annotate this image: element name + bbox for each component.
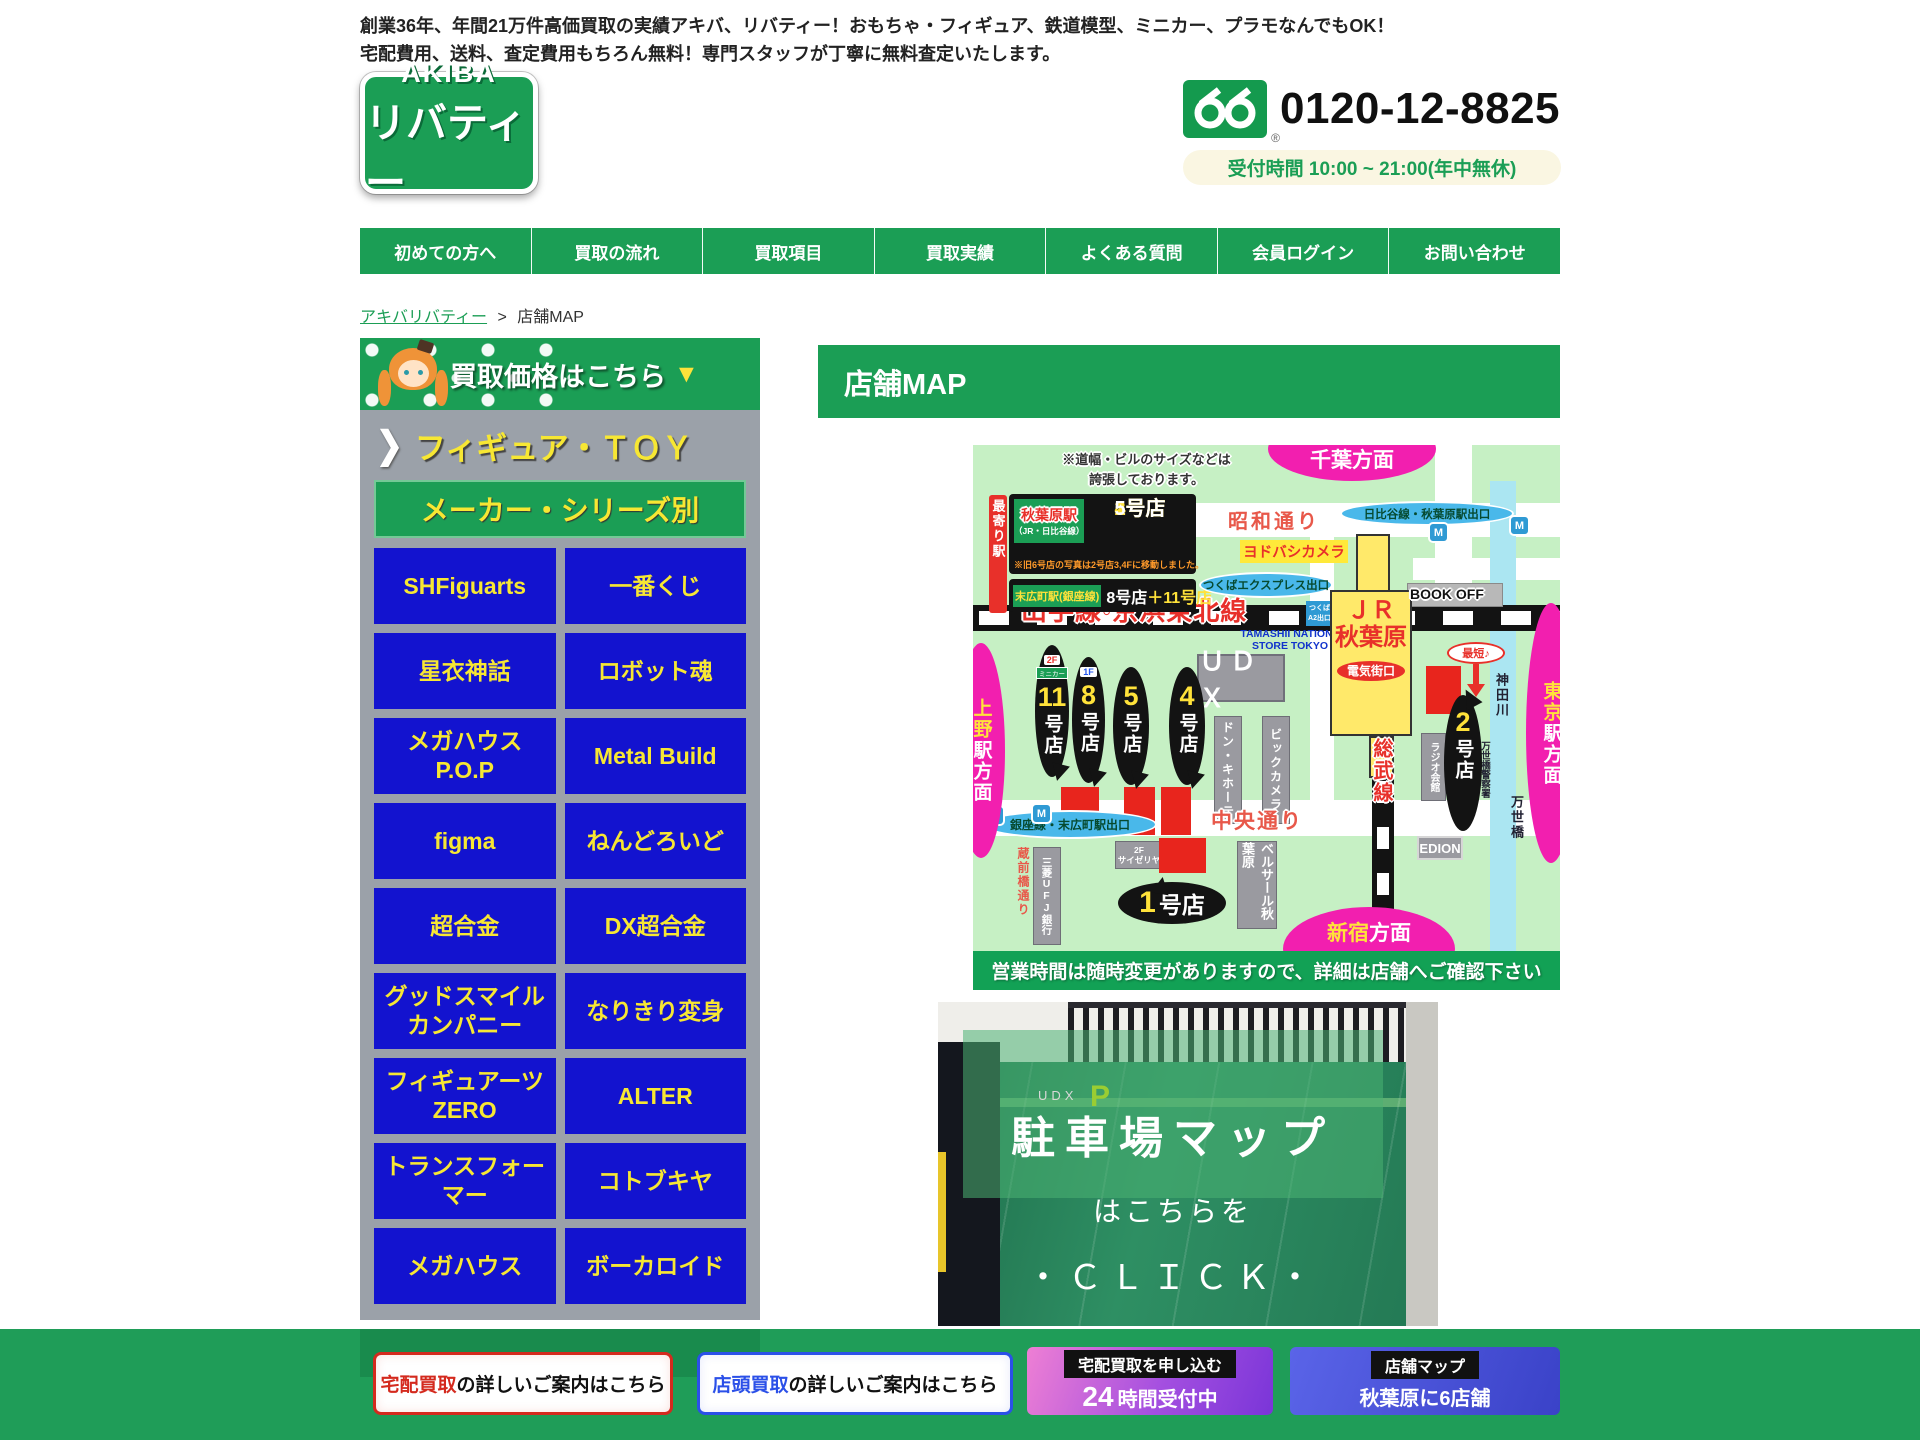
nav-item-first-time[interactable]: 初めての方へ: [360, 228, 532, 274]
reception-hours: 受付時間 10:00 ~ 21:00(年中無休): [1183, 150, 1561, 185]
page-title-bar: 店舗MAP: [818, 345, 1560, 418]
delivery-apply-button[interactable]: 宅配買取を申し込む 24時間受付中: [1027, 1347, 1273, 1415]
delivery-purchase-guide-button[interactable]: 宅配買取の詳しいご案内はこちら: [373, 1352, 673, 1415]
jr-label: ＪＲ: [1332, 598, 1410, 625]
map-info-bar: 営業時間は随時変更がありますので、詳細は店舗へご確認下さい: [973, 951, 1560, 990]
saizeriya-label: サイゼリヤ: [1118, 855, 1161, 865]
saizeriya-floor: 2F: [1134, 845, 1144, 855]
store-8-label: 8号店: [1106, 590, 1147, 607]
category-goodsmile[interactable]: グッドスマイルカンパニー: [374, 973, 556, 1049]
nav-item-purchase-flow[interactable]: 買取の流れ: [532, 228, 704, 274]
nav-item-purchase-results[interactable]: 買取実績: [875, 228, 1047, 274]
udx-building: ＵＤＸ: [1197, 654, 1285, 702]
tsukuba-express-exit-label: つくばエクスプレス出口: [1199, 572, 1333, 598]
bic-camera-label: ビックカメラ: [1268, 728, 1285, 812]
balloon-2-suffix: 号店: [1450, 739, 1477, 781]
category-alter[interactable]: ALTER: [565, 1058, 747, 1134]
store-balloon-2: 2 号店: [1444, 695, 1482, 831]
category-robot-damashii[interactable]: ロボット魂: [565, 633, 747, 709]
tokyo-main: 東京: [1541, 681, 1561, 723]
shinjuku-main: 新宿: [1327, 922, 1369, 945]
store-6-moved-note: ※旧6号店の写真は2号店3,4Fに移動しました。: [1014, 558, 1194, 571]
mascot-character: [380, 342, 446, 408]
nearest-station-label: 最寄り駅: [989, 495, 1007, 613]
radio-kaikan-building: ラジオ会館: [1421, 733, 1446, 801]
map-note-line1: ※道幅・ビルのサイズなどは: [1062, 452, 1231, 467]
bookoff-label: BOOK OFF: [1410, 586, 1484, 602]
sobu-line-label: 総武線: [1370, 738, 1396, 804]
sidebar: 買取価格はこちら ▼ ❯ フィギュア・ＴＯＹ メーカー・シリーズ別 SHFigu…: [360, 338, 760, 1320]
jr-building-top: [1356, 534, 1390, 592]
bellesalle-building: ベルサール秋葉原: [1237, 841, 1277, 929]
akihabara-station-lines: （JR・日比谷線）: [1014, 525, 1084, 537]
delivery-apply-label: 宅配買取を申し込む: [1064, 1350, 1236, 1378]
balloon-8-floor-badge: 1F: [1080, 667, 1097, 677]
logo-liberty-text: リバティー: [365, 89, 533, 209]
balloon-8-suffix: 号店: [1075, 712, 1102, 754]
akihabara-station-badge: 秋葉原駅 （JR・日比谷線）: [1014, 499, 1084, 543]
hours-24: 24: [1082, 1381, 1113, 1412]
category-grid: SHFiguarts 一番くじ 星衣神話 ロボット魂 メガハウス P.O.P M…: [374, 548, 746, 1304]
category-figuarts-zero[interactable]: フィギュアーツZERO: [374, 1058, 556, 1134]
a2-line1: つくば: [1309, 604, 1330, 613]
store-balloon-8: 1F 8 号店: [1072, 657, 1105, 783]
category-saint-cloth-myth[interactable]: 星衣神話: [374, 633, 556, 709]
map-note: ※道幅・ビルのサイズなどは 誇張しております。: [1059, 450, 1234, 489]
denkigai-exit-label: 電気街口: [1337, 661, 1405, 681]
udx-sign-label: UDX: [1038, 1088, 1077, 1103]
parking-map-line2: はこちらを: [938, 1190, 1408, 1230]
breadcrumb-separator: >: [498, 309, 507, 326]
shortest-route-arrow: [1473, 664, 1479, 686]
page-title: 店舗MAP: [844, 361, 966, 403]
freedial-icon: ®: [1183, 80, 1267, 138]
parking-photo-column: [1406, 1002, 1438, 1326]
mitsubishi-ufj-label: 三菱UFJ銀行: [1040, 857, 1055, 935]
price-banner[interactable]: 買取価格はこちら ▼: [360, 338, 760, 410]
balloon-4-number: 4: [1179, 683, 1194, 710]
balloon-11-number: 11: [1038, 684, 1067, 711]
akihabara-label: 秋葉原: [1332, 625, 1410, 652]
footer-bar: 宅配買取の詳しいご案内はこちら 店頭買取の詳しいご案内はこちら 宅配買取を申し込…: [0, 1329, 1920, 1440]
category-transformers[interactable]: トランスフォーマー: [374, 1143, 556, 1219]
parking-map-link[interactable]: UDX P 駐車場マップ はこちらを ・ＣＬＩＣＫ・: [938, 1002, 1438, 1326]
showa-dori-label: 昭和通り: [1228, 505, 1320, 534]
store-balloon-1: 1 号店: [1118, 882, 1226, 924]
shinjuku-suffix: 方面: [1369, 922, 1411, 945]
akihabara-station-box: 秋葉原駅 （JR・日比谷線） 1号店 2号店 4号店 5号店 ※旧6号店の写真は…: [1009, 494, 1196, 574]
chevron-right-icon: ❯: [376, 423, 403, 467]
chuo-dori-label: 中央通り: [1211, 805, 1303, 835]
category-shfiguarts[interactable]: SHFiguarts: [374, 548, 556, 624]
tamashii-line1: TAMASHII NATIONS: [1240, 628, 1339, 640]
category-megahouse[interactable]: メガハウス: [374, 1228, 556, 1304]
store-balloon-4: 4 号店: [1169, 667, 1205, 785]
store-map: ※道幅・ビルのサイズなどは 誇張しております。 千葉方面 日比谷線・秋葉原駅出口…: [973, 445, 1560, 990]
ueno-main: 上野: [973, 698, 992, 740]
parking-map-title: 駐車場マップ: [938, 1102, 1408, 1166]
store-map-label: 店舗マップ: [1371, 1351, 1479, 1379]
kanda-river-label: 神田川: [1492, 673, 1511, 718]
store-purchase-em: 店頭買取: [712, 1370, 788, 1397]
tokyo-suffix: 駅方面: [1541, 723, 1561, 786]
suehirocho-store-list: 8号店＋11号店: [1106, 584, 1212, 608]
nearest-station-text: 最寄り駅: [989, 499, 1008, 613]
breadcrumb-current: 店舗MAP: [517, 309, 584, 326]
maker-series-header: メーカー・シリーズ別: [374, 480, 746, 538]
a2-line2: A2出口: [1308, 614, 1331, 623]
shortest-route-arrowhead: [1467, 684, 1485, 697]
hibiya-exit-label: 日比谷線・秋葉原駅出口: [1340, 501, 1514, 526]
suehirocho-station-name: 末広町駅(銀座線): [1013, 585, 1101, 607]
balloon-1-number: 1: [1139, 888, 1156, 918]
balloon-8-number: 8: [1081, 682, 1096, 709]
balloon-4-suffix: 号店: [1174, 713, 1201, 755]
category-nendoroid[interactable]: ねんどろいど: [565, 803, 747, 879]
balloon-2-number: 2: [1455, 709, 1470, 736]
breadcrumb-home-link[interactable]: アキバリバティー: [360, 309, 487, 326]
store-map-sub: 秋葉原に6店舗: [1359, 1382, 1490, 1411]
store-balloon-5: 5 号店: [1113, 667, 1149, 785]
nav-item-member-login[interactable]: 会員ログイン: [1218, 228, 1390, 274]
mitsubishi-ufj-building: 三菱UFJ銀行: [1033, 847, 1061, 945]
logo-akiba-text: AKIBA: [401, 58, 497, 89]
category-figma[interactable]: figma: [374, 803, 556, 879]
yodobashi-camera-label: ヨドバシカメラ: [1240, 540, 1348, 563]
phone-number: 0120-12-8825: [1280, 84, 1560, 134]
nav-item-contact[interactable]: お問い合わせ: [1389, 228, 1560, 274]
category-dx-chogokin[interactable]: DX超合金: [565, 888, 747, 964]
nav-item-faq[interactable]: よくある質問: [1046, 228, 1218, 274]
tagline-line2: 宅配費用、送料、査定費用もちろん無料！専門スタッフが丁寧に無料査定いたします。: [360, 40, 1394, 68]
main-nav: 初めての方へ 買取の流れ 買取項目 買取実績 よくある質問 会員ログイン お問い…: [360, 228, 1560, 274]
price-banner-label: 買取価格はこちら: [450, 355, 666, 394]
store-purchase-guide-button[interactable]: 店頭買取の詳しいご案内はこちら: [697, 1352, 1013, 1415]
store-balloon-11: 2F ミニカー 11 号店: [1035, 645, 1069, 777]
metro-icon: M: [1031, 803, 1052, 824]
balloon-5-number: 5: [1123, 683, 1138, 710]
figure-toy-label: フィギュア・ＴＯＹ: [415, 423, 693, 468]
category-vocaloid[interactable]: ボーカロイド: [565, 1228, 747, 1304]
ginza-exit-label: 銀座線・末広町駅出口: [983, 810, 1157, 839]
delivery-purchase-em: 宅配買取: [380, 1370, 456, 1397]
category-narikiri[interactable]: なりきり変身: [565, 973, 747, 1049]
manseibashi-label: 万世橋: [1507, 795, 1526, 840]
site-logo[interactable]: AKIBA リバティー: [360, 72, 538, 194]
radio-kaikan-label: ラジオ会館: [1426, 742, 1441, 792]
category-ichibankuji[interactable]: 一番くじ: [565, 548, 747, 624]
category-kotobukiya[interactable]: コトブキヤ: [565, 1143, 747, 1219]
direction-chiba-label: 千葉方面: [1268, 445, 1436, 481]
balloon-11-suffix: 号店: [1039, 714, 1066, 756]
category-chogokin[interactable]: 超合金: [374, 888, 556, 964]
edion-building: EDION: [1417, 836, 1463, 860]
category-megahouse-pop[interactable]: メガハウス P.O.P: [374, 718, 556, 794]
site-tagline: 創業36年、年間21万件高価買取の実績アキバ、リバティー！おもちゃ・フィギュア、…: [360, 12, 1394, 68]
suehirocho-station-box: 末広町駅(銀座線) 8号店＋11号店: [1009, 579, 1196, 612]
parking-map-click: ・ＣＬＩＣＫ・: [938, 1250, 1408, 1299]
akihabara-station-name: 秋葉原駅: [1021, 505, 1077, 525]
sidebar-panel: ❯ フィギュア・ＴＯＹ メーカー・シリーズ別 SHFiguarts 一番くじ 星…: [360, 410, 760, 1320]
kuramae-dori-label: 蔵前橋通り: [1015, 847, 1032, 917]
saizeriya-building: 2F サイゼリヤ: [1115, 841, 1163, 869]
shortest-route-label: 最短♪: [1447, 642, 1505, 664]
category-figure-toy-header[interactable]: ❯ フィギュア・ＴＯＹ: [360, 410, 760, 480]
hours-24-rest: 時間受付中: [1118, 1389, 1218, 1411]
metro-icon: M: [1509, 515, 1530, 536]
tagline-line1: 創業36年、年間21万件高価買取の実績アキバ、リバティー！おもちゃ・フィギュア、…: [360, 12, 1394, 40]
metro-icon: M: [1428, 522, 1449, 543]
delivery-purchase-rest: の詳しいご案内はこちら: [457, 1370, 666, 1397]
store-5-label: 5号店: [1114, 498, 1165, 521]
balloon-5-suffix: 号店: [1118, 713, 1145, 755]
bellesalle-label: ベルサール秋葉原: [1238, 842, 1276, 928]
down-triangle-icon: ▼: [674, 360, 699, 389]
registered-mark: ®: [1271, 131, 1280, 145]
store-map-button[interactable]: 店舗マップ 秋葉原に6店舗: [1290, 1347, 1560, 1415]
map-note-line2: 誇張しております。: [1089, 472, 1204, 487]
store-purchase-rest: の詳しいご案内はこちら: [789, 1370, 998, 1397]
nav-item-purchase-items[interactable]: 買取項目: [703, 228, 875, 274]
balloon-11-minicar-badge: ミニカー: [1036, 667, 1068, 679]
ueno-suffix: 駅方面: [973, 740, 992, 803]
category-metal-build[interactable]: Metal Build: [565, 718, 747, 794]
breadcrumb: アキバリバティー > 店舗MAP: [360, 303, 584, 327]
balloon-11-floor-badge: 2F: [1044, 655, 1061, 665]
balloon-1-suffix: 号店: [1159, 886, 1205, 920]
jr-akihabara-building: ＪＲ 秋葉原 電気街口: [1330, 590, 1412, 736]
tsukuba-a2-exit-label: つくば A2出口: [1306, 601, 1333, 626]
